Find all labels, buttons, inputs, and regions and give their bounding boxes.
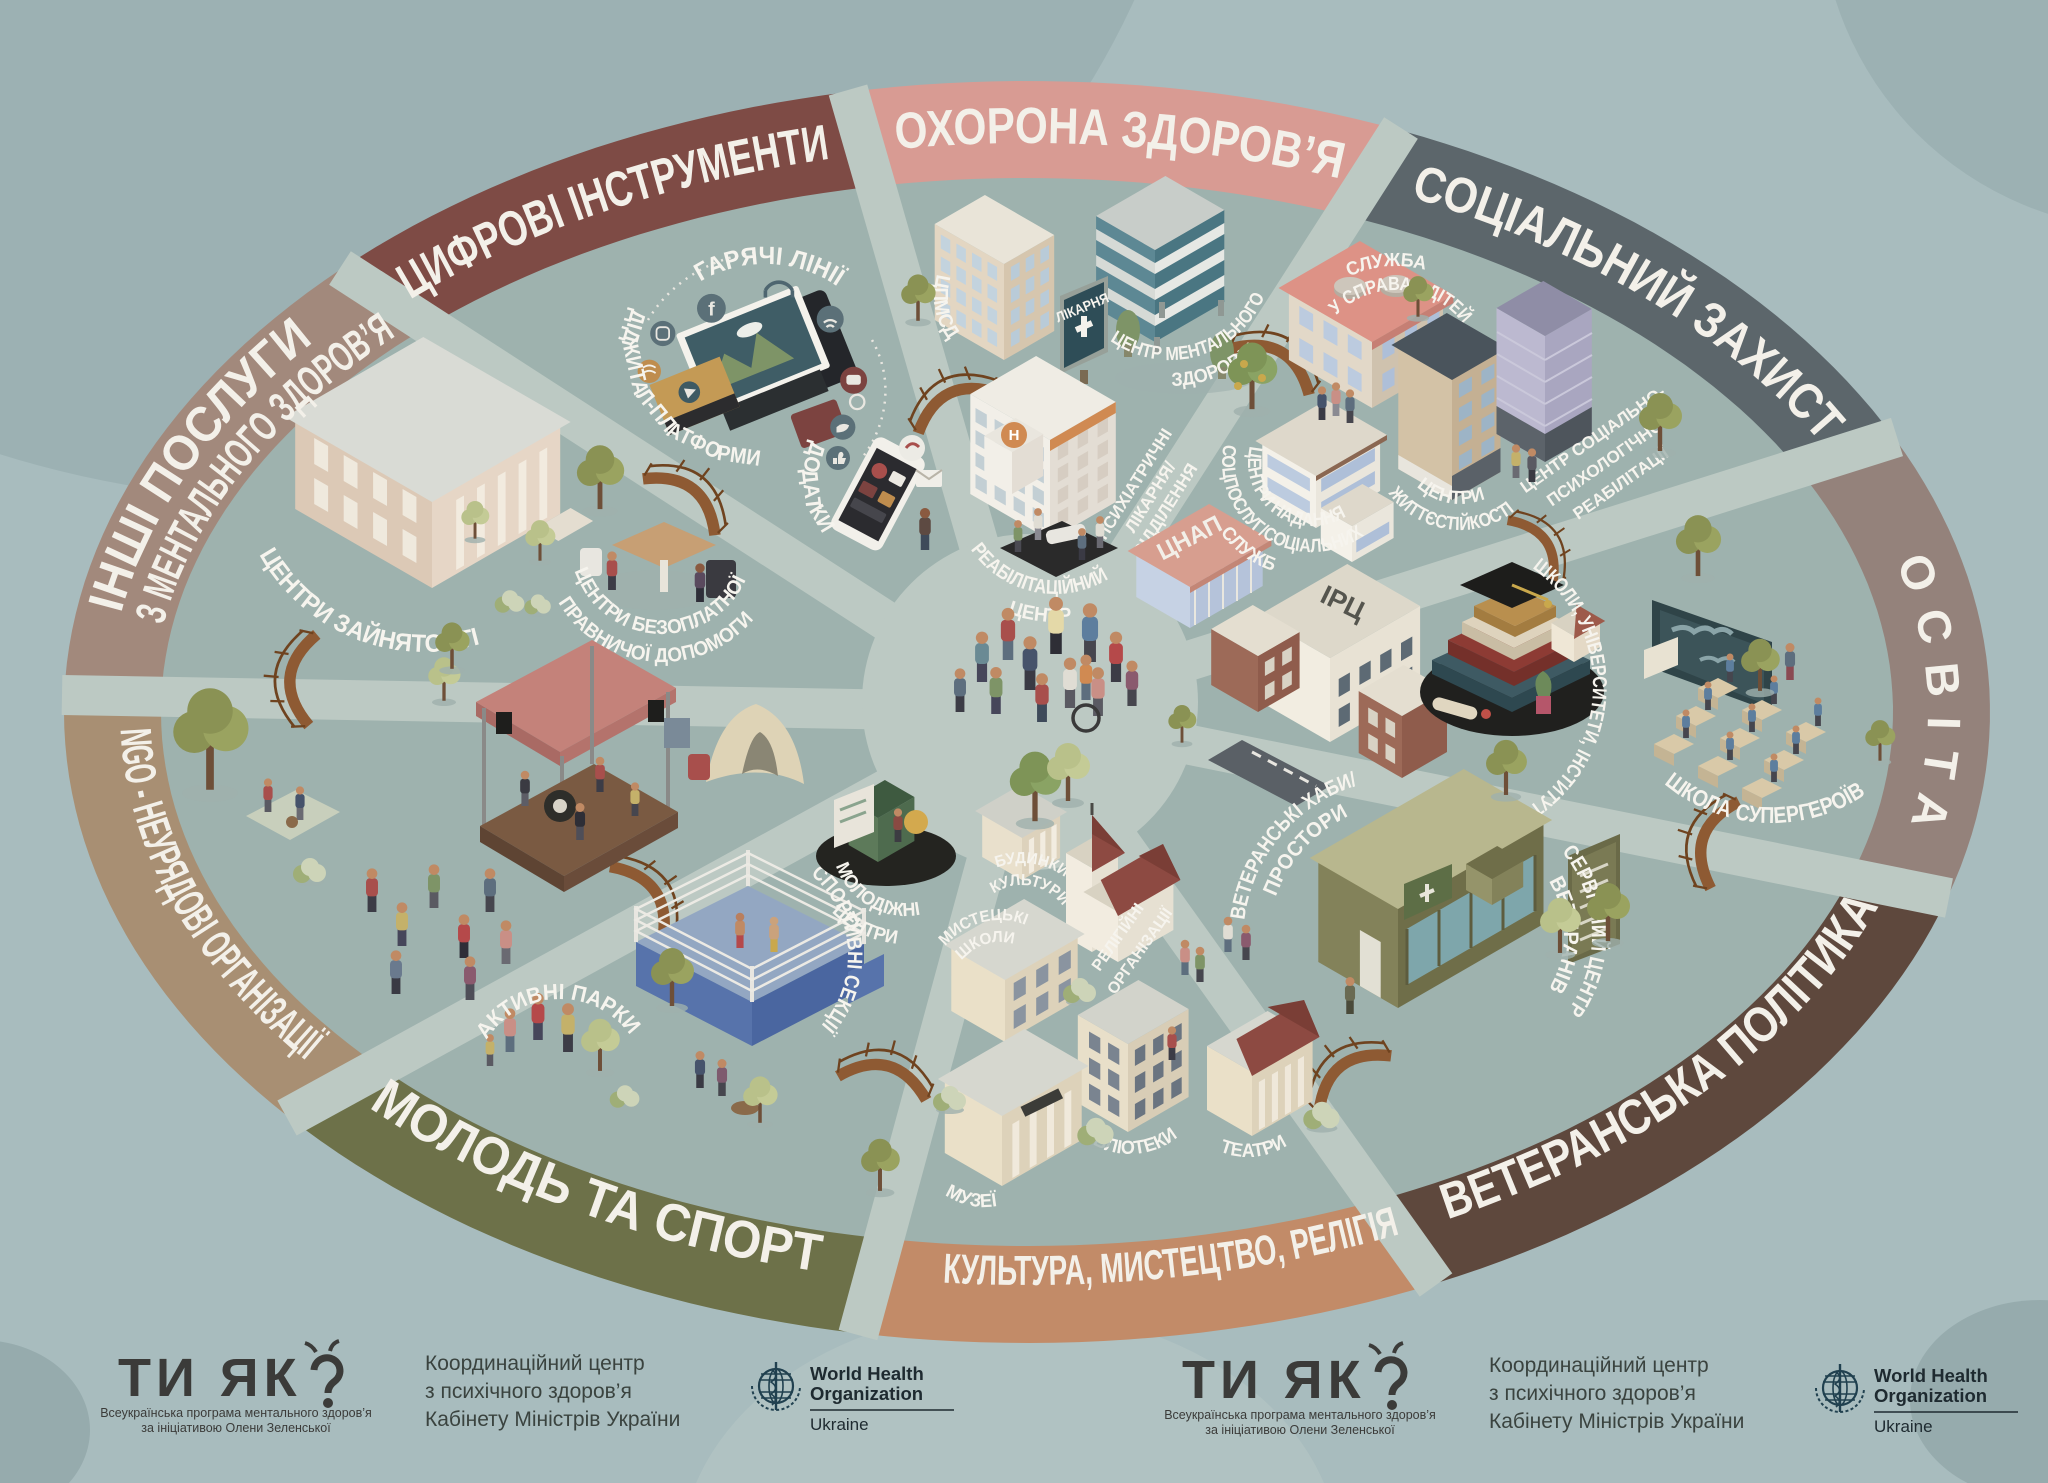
svg-text:H: H <box>1009 427 1020 444</box>
svg-text:Кабінету Міністрів України: Кабінету Міністрів України <box>1489 1410 1744 1433</box>
svg-text:Всеукраїнська програма менталь: Всеукраїнська програма ментального здоро… <box>1164 1408 1436 1422</box>
svg-text:Organization: Organization <box>810 1383 923 1404</box>
svg-text:Кабінету Міністрів України: Кабінету Міністрів України <box>425 1408 680 1431</box>
svg-text:Всеукраїнська програма менталь: Всеукраїнська програма ментального здоро… <box>100 1406 372 1420</box>
svg-text:ТИ ЯК: ТИ ЯК <box>118 1348 302 1408</box>
svg-text:Координаційний центр: Координаційний центр <box>1489 1354 1709 1377</box>
svg-text:Ukraine: Ukraine <box>810 1415 869 1434</box>
svg-text:Ukraine: Ukraine <box>1874 1417 1933 1436</box>
svg-text:Координаційний центр: Координаційний центр <box>425 1352 645 1375</box>
svg-text:f: f <box>708 299 715 321</box>
svg-text:за ініціативою Олени Зеленсько: за ініціативою Олени Зеленської <box>1205 1423 1395 1437</box>
svg-text:з психічного здоров’я: з психічного здоров’я <box>1489 1382 1696 1405</box>
svg-text:World Health: World Health <box>1874 1365 1988 1386</box>
svg-text:ТИ ЯК: ТИ ЯК <box>1182 1350 1366 1410</box>
svg-text:Organization: Organization <box>1874 1385 1987 1406</box>
svg-text:за ініціативою Олени Зеленсько: за ініціативою Олени Зеленської <box>141 1421 331 1435</box>
svg-text:з психічного здоров’я: з психічного здоров’я <box>425 1380 632 1403</box>
svg-text:World Health: World Health <box>810 1363 924 1384</box>
